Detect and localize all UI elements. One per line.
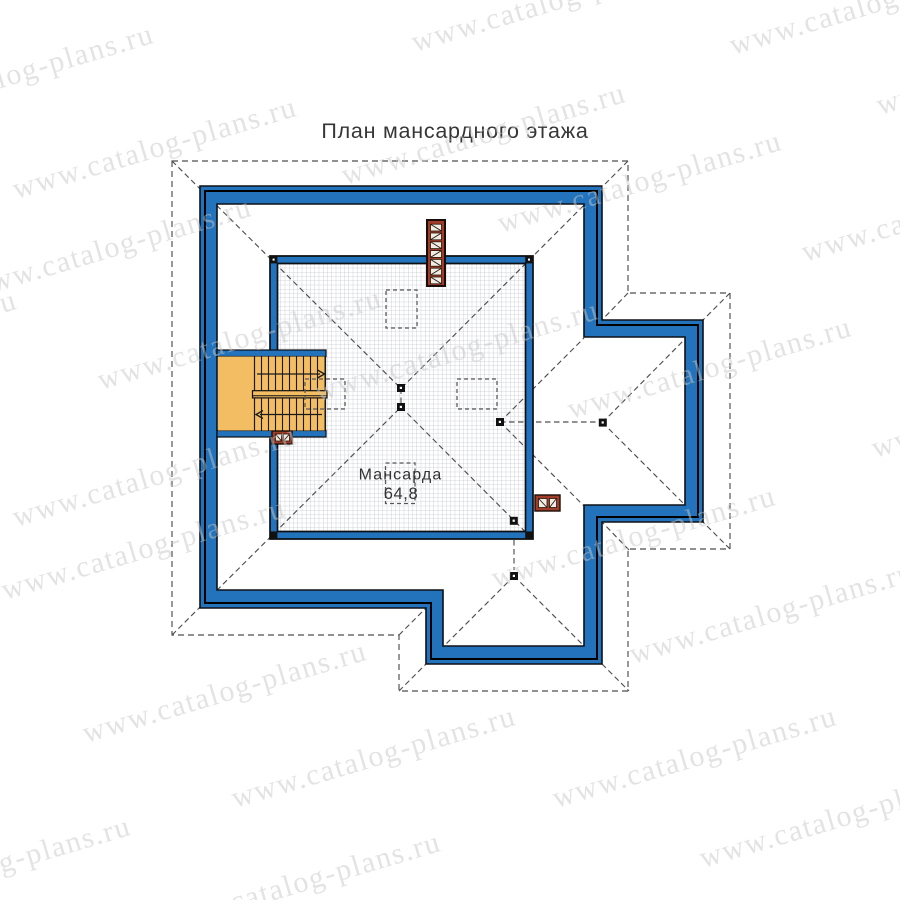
svg-text:64,8: 64,8 [384,485,419,503]
svg-text:Мансарда: Мансарда [359,467,443,484]
